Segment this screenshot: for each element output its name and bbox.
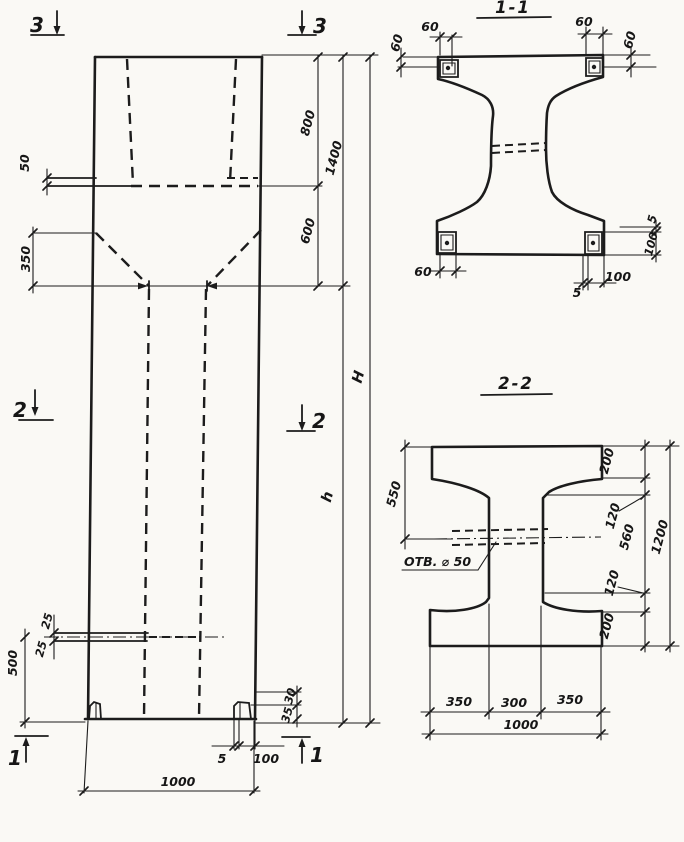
dim-H: H xyxy=(350,369,369,385)
web-hole xyxy=(434,529,601,545)
taper-level-line xyxy=(33,283,350,290)
dim-1200: 1200 xyxy=(648,518,672,556)
marker-1-right-label: 1 xyxy=(310,743,324,767)
dim-120-top: 120 xyxy=(602,501,623,530)
marker-3-left-label: 3 xyxy=(30,13,44,37)
dim-1000: 1000 xyxy=(161,774,196,789)
dim-30: 30 xyxy=(281,686,299,705)
dim-200-bot: 200 xyxy=(596,611,617,640)
section-1-1-outline xyxy=(437,55,604,255)
dim-100-bottom: 100 xyxy=(605,269,631,284)
anchor-dot xyxy=(446,66,450,70)
web-hole-dashes xyxy=(492,143,546,153)
section-marker-1-right: 1 xyxy=(282,737,324,767)
dim-1400: 1400 xyxy=(322,139,346,177)
section-marker-2-right: 2 xyxy=(287,405,326,433)
marker-2-right-label: 2 xyxy=(312,409,326,433)
hidden-web-lines xyxy=(96,59,261,718)
dim-h: h xyxy=(319,490,337,504)
ledge-and-slot xyxy=(44,178,226,641)
dim-60-tr-e: 60 xyxy=(620,29,639,50)
section-marker-3-left: 3 xyxy=(30,11,64,37)
dim-60-tl-w: 60 xyxy=(421,19,439,34)
dim-600: 600 xyxy=(297,216,318,245)
dim-60-tl-e: 60 xyxy=(387,32,406,53)
dim-100: 100 xyxy=(253,751,279,766)
anchor-dot xyxy=(591,241,595,245)
section-2-2-title: 2-2 xyxy=(498,374,534,393)
dim-200-top: 200 xyxy=(596,446,617,475)
dim-350-right: 350 xyxy=(557,692,583,707)
anchor-dot xyxy=(592,65,596,69)
section-1-1-title: 1-1 xyxy=(495,0,531,17)
marker-1-left-label: 1 xyxy=(8,746,22,770)
dim-5: 5 xyxy=(218,751,227,766)
base-tab-left xyxy=(89,702,101,719)
hole-callout: ОТВ. ⌀ 50 xyxy=(402,542,496,570)
marker-2-left-label: 2 xyxy=(13,398,27,422)
section-1-1-view: 1-1 60 60 60 xyxy=(387,0,661,300)
dim-560: 560 xyxy=(616,522,637,551)
section-marker-2-left: 2 xyxy=(13,390,53,422)
section-marker-3-right: 3 xyxy=(288,11,327,38)
column-outline xyxy=(85,57,262,719)
anchor-dot xyxy=(445,241,449,245)
dim-50: 50 xyxy=(17,154,32,172)
dim-5-bottom: 5 xyxy=(573,285,582,300)
technical-drawing: 50 350 800 600 1400 h H 25 25 xyxy=(0,0,684,842)
dim-60-tr-w: 60 xyxy=(575,14,593,29)
dim-1000-section: 1000 xyxy=(504,717,539,732)
dim-5-right: 5 xyxy=(644,213,660,224)
dim-550: 550 xyxy=(383,479,404,508)
dim-25-top: 25 xyxy=(38,611,56,630)
dim-25-bot: 25 xyxy=(32,639,50,658)
drawing-sheet: 50 350 800 600 1400 h H 25 25 xyxy=(0,0,684,842)
section-2-2-dimensions: 550 200 120 560 120 200 1200 xyxy=(383,440,679,740)
marker-3-right-label: 3 xyxy=(313,14,327,38)
dim-60-bl: 60 xyxy=(414,264,432,279)
section-marker-1-left: 1 xyxy=(8,736,48,770)
section-2-2-outline xyxy=(430,446,602,646)
hole-label: ОТВ. ⌀ 50 xyxy=(404,554,471,569)
section-2-2-view: 2-2 ОТВ. ⌀ 50 550 xyxy=(383,374,679,740)
section-markers: 3 3 2 2 1 1 xyxy=(8,11,327,770)
dim-300: 300 xyxy=(501,695,527,710)
base-tab-right xyxy=(234,702,251,719)
dim-500: 500 xyxy=(5,650,20,676)
dim-350-left: 350 xyxy=(446,694,472,709)
dim-800: 800 xyxy=(297,108,318,137)
dim-350: 350 xyxy=(18,246,33,272)
